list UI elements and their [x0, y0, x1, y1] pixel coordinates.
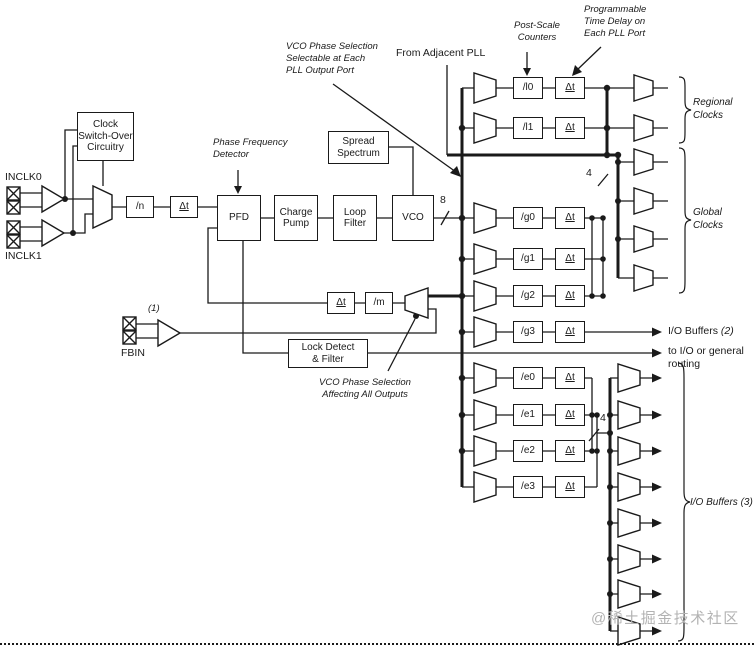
l0-counter-block: /l0 — [513, 77, 543, 99]
loop-filter-block: Loop Filter — [333, 195, 377, 241]
pin-inclk1-b — [7, 235, 20, 248]
bus-width-4-external: 4 — [600, 412, 606, 424]
bus4-global-slash — [598, 174, 608, 186]
mux-e0 — [474, 363, 496, 393]
io2-arrow — [652, 328, 662, 337]
mux-e2 — [474, 436, 496, 466]
regional-clocks-brace — [679, 77, 691, 143]
delay-l1-block: Δt — [555, 117, 585, 139]
vco-phase-out-annotation: VCO Phase Selection Selectable at Each P… — [286, 41, 378, 77]
diagram-wires-and-shapes — [0, 0, 754, 648]
g0-counter-block: /g0 — [513, 207, 543, 229]
spread-spectrum-block: Spread Spectrum — [328, 131, 389, 164]
g2-counter-block: /g2 — [513, 285, 543, 307]
global-buffer-4 — [634, 265, 653, 291]
global-buffer-3 — [634, 226, 653, 252]
regional-clocks-label: Regional Clocks — [693, 97, 732, 123]
io-buffer-3 — [618, 437, 640, 465]
lock-detect-block: Lock Detect & Filter — [288, 339, 368, 368]
vco-block: VCO — [392, 195, 434, 241]
io-buffers2-label: I/O Buffers (2) — [668, 325, 734, 337]
post-scale-annotation: Post-Scale Counters — [503, 20, 571, 44]
io-buffer-4 — [618, 473, 640, 501]
clock-select-mux — [93, 186, 112, 228]
io-buffer-2 — [618, 401, 640, 429]
clock-switchover-block: Clock Switch-Over Circuitry — [77, 112, 134, 161]
delay-g3-block: Δt — [555, 321, 585, 343]
mux-g3 — [474, 317, 496, 347]
mux-g1 — [474, 244, 496, 274]
inclk1-label: INCLK1 — [5, 250, 42, 263]
postscale-arrowhead — [523, 68, 531, 76]
io-buffers-brace — [678, 363, 690, 641]
vco-phase-all-annotation: VCO Phase Selection Affecting All Output… — [317, 377, 413, 401]
delay-e1-block: Δt — [555, 404, 585, 426]
e1-counter-block: /e1 — [513, 404, 543, 426]
pll-block-diagram: Clock Switch-Over Circuitry /n Δt PFD Ch… — [0, 0, 754, 648]
delay-g1-block: Δt — [555, 248, 585, 270]
m-counter-block: /m — [365, 292, 393, 314]
delay-m-block: Δt — [327, 292, 355, 314]
pfd-arrowhead — [234, 186, 242, 194]
e2-counter-block: /e2 — [513, 440, 543, 462]
io-buffer-1 — [618, 364, 640, 392]
n-counter-block: /n — [126, 196, 154, 218]
bus-width-4-global: 4 — [586, 167, 592, 179]
bottom-dotted-divider — [0, 643, 754, 645]
feedback-phase-mux — [405, 288, 428, 318]
pin-inclk0-b — [7, 201, 20, 214]
pin-inclk0-a — [7, 187, 20, 200]
global-buffer-2 — [634, 188, 653, 214]
watermark: @稀土掘金技术社区 — [591, 607, 740, 628]
l1-counter-block: /l1 — [513, 117, 543, 139]
g1-counter-block: /g1 — [513, 248, 543, 270]
inclk0-label: INCLK0 — [5, 171, 42, 184]
regional-buffer-1 — [634, 75, 653, 101]
fbin-note: (1) — [148, 303, 160, 315]
from-adjacent-label: From Adjacent PLL — [396, 47, 485, 60]
global-clocks-label: Global Clocks — [693, 207, 723, 233]
io-routing-label: to I/O or general routing — [668, 345, 744, 371]
mux-g0 — [474, 203, 496, 233]
fbin-label: FBIN — [121, 347, 145, 360]
mux-e1 — [474, 400, 496, 430]
pins — [7, 187, 136, 344]
fbin-input-buffer — [158, 320, 180, 346]
delay-e2-block: Δt — [555, 440, 585, 462]
e3-counter-block: /e3 — [513, 476, 543, 498]
pfd-block: PFD — [217, 195, 261, 241]
vco-phase-out-arrowhead — [450, 166, 461, 177]
mux-l0 — [474, 73, 496, 103]
io-buffers3-label: I/O Buffers (3) — [690, 497, 753, 510]
delay-e0-block: Δt — [555, 367, 585, 389]
io-buffer-6 — [618, 545, 640, 573]
g3-counter-block: /g3 — [513, 321, 543, 343]
inclk0-input-buffer — [42, 186, 64, 212]
io-buffer-5 — [618, 509, 640, 537]
delay-n-block: Δt — [170, 196, 198, 218]
delay-l0-block: Δt — [555, 77, 585, 99]
delay-g0-block: Δt — [555, 207, 585, 229]
pin-inclk1-a — [7, 221, 20, 234]
delay-g2-block: Δt — [555, 285, 585, 307]
io-buffer-7 — [618, 580, 640, 608]
pin-fbin-b — [123, 331, 136, 344]
bus-width-8: 8 — [440, 194, 446, 206]
mux-l1 — [474, 113, 496, 143]
pin-fbin-a — [123, 317, 136, 330]
mux-e3 — [474, 472, 496, 502]
global-clocks-brace — [679, 148, 691, 293]
inclk1-input-buffer — [42, 220, 64, 246]
e0-counter-block: /e0 — [513, 367, 543, 389]
regional-buffer-2 — [634, 115, 653, 141]
charge-pump-block: Charge Pump — [274, 195, 318, 241]
delay-e3-block: Δt — [555, 476, 585, 498]
mux-g2 — [474, 281, 496, 311]
io-routing-arrow — [652, 349, 662, 358]
pfd-annotation: Phase Frequency Detector — [213, 137, 287, 161]
global-buffer-1 — [634, 149, 653, 175]
prog-delay-annotation: Programmable Time Delay on Each PLL Port — [584, 4, 646, 40]
